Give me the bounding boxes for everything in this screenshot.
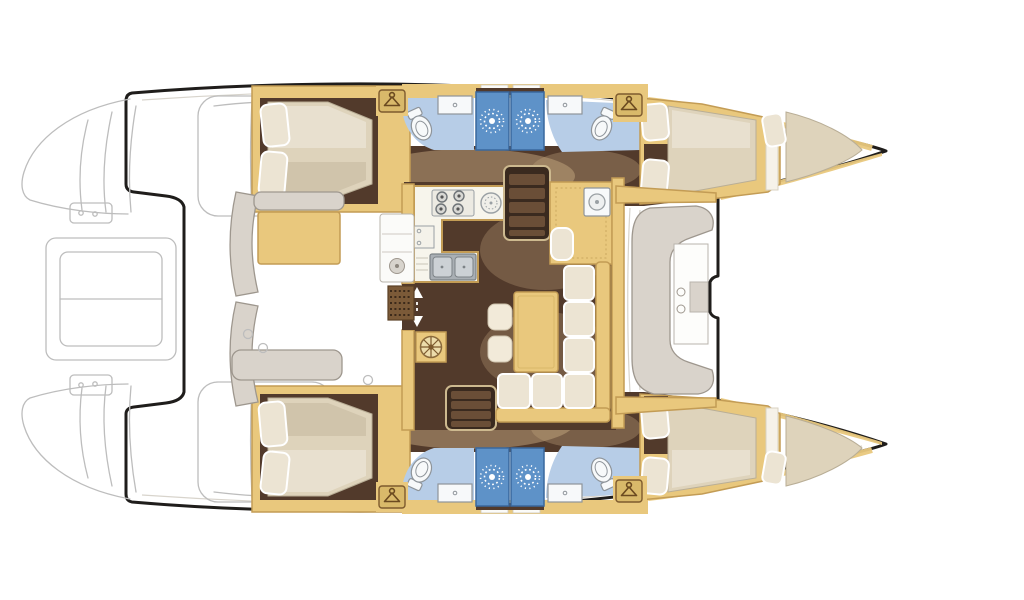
forward-cockpit-table [674, 244, 708, 344]
double-bed [258, 102, 372, 200]
chart-table [550, 182, 612, 264]
cockpit-bench [258, 212, 340, 264]
port-transom-steps-sketch [22, 99, 136, 223]
sofa-cushion [498, 374, 530, 408]
forward-cabin [640, 98, 780, 204]
washbasin [438, 484, 472, 502]
saloon-forward-wall [612, 178, 624, 428]
dinghy-davit-bay-sketch [46, 238, 176, 360]
table-notch [690, 282, 708, 312]
wardrobe-locker [613, 476, 647, 508]
sofa-cushion [564, 266, 594, 300]
bench-backrest [254, 192, 344, 210]
companionway-stairs-starboard [446, 386, 496, 430]
companionway-stairs-port [504, 166, 550, 240]
deck-grate [388, 286, 414, 320]
catamaran-floor-plan [0, 0, 1024, 600]
floor-hatch [416, 332, 446, 362]
sofa-backrest [496, 408, 610, 422]
bow-berth [761, 112, 862, 190]
sofa-cushion [564, 338, 594, 372]
double-sink [430, 254, 476, 280]
pillow [761, 113, 786, 148]
wardrobe-locker [613, 90, 647, 122]
stool [488, 336, 512, 362]
starboard-transom-steps-sketch [22, 375, 136, 499]
four-burner-stove [432, 190, 474, 216]
wardrobe-locker [376, 86, 408, 116]
cockpit-bench [232, 350, 342, 380]
sofa-cushion [532, 374, 562, 408]
sofa-cushion [564, 374, 594, 408]
saloon [402, 166, 624, 430]
oven [414, 226, 434, 248]
pillow [260, 103, 290, 147]
pillow [260, 451, 290, 495]
washbasin [548, 484, 582, 502]
pillow [761, 451, 786, 486]
pillow [258, 151, 288, 197]
double-bed [258, 398, 372, 496]
sofa-cushion [564, 302, 594, 336]
bow-berth [761, 408, 862, 486]
cockpit-grill-module [380, 214, 414, 282]
sofa-backrest [596, 262, 610, 412]
washbasin [548, 96, 582, 114]
pillow [258, 401, 288, 447]
washbasin [438, 96, 472, 114]
stool [488, 304, 512, 330]
wardrobe-locker [376, 482, 408, 512]
dining-table [514, 292, 558, 372]
round-sink [481, 193, 501, 213]
seat-cushion [551, 228, 573, 260]
